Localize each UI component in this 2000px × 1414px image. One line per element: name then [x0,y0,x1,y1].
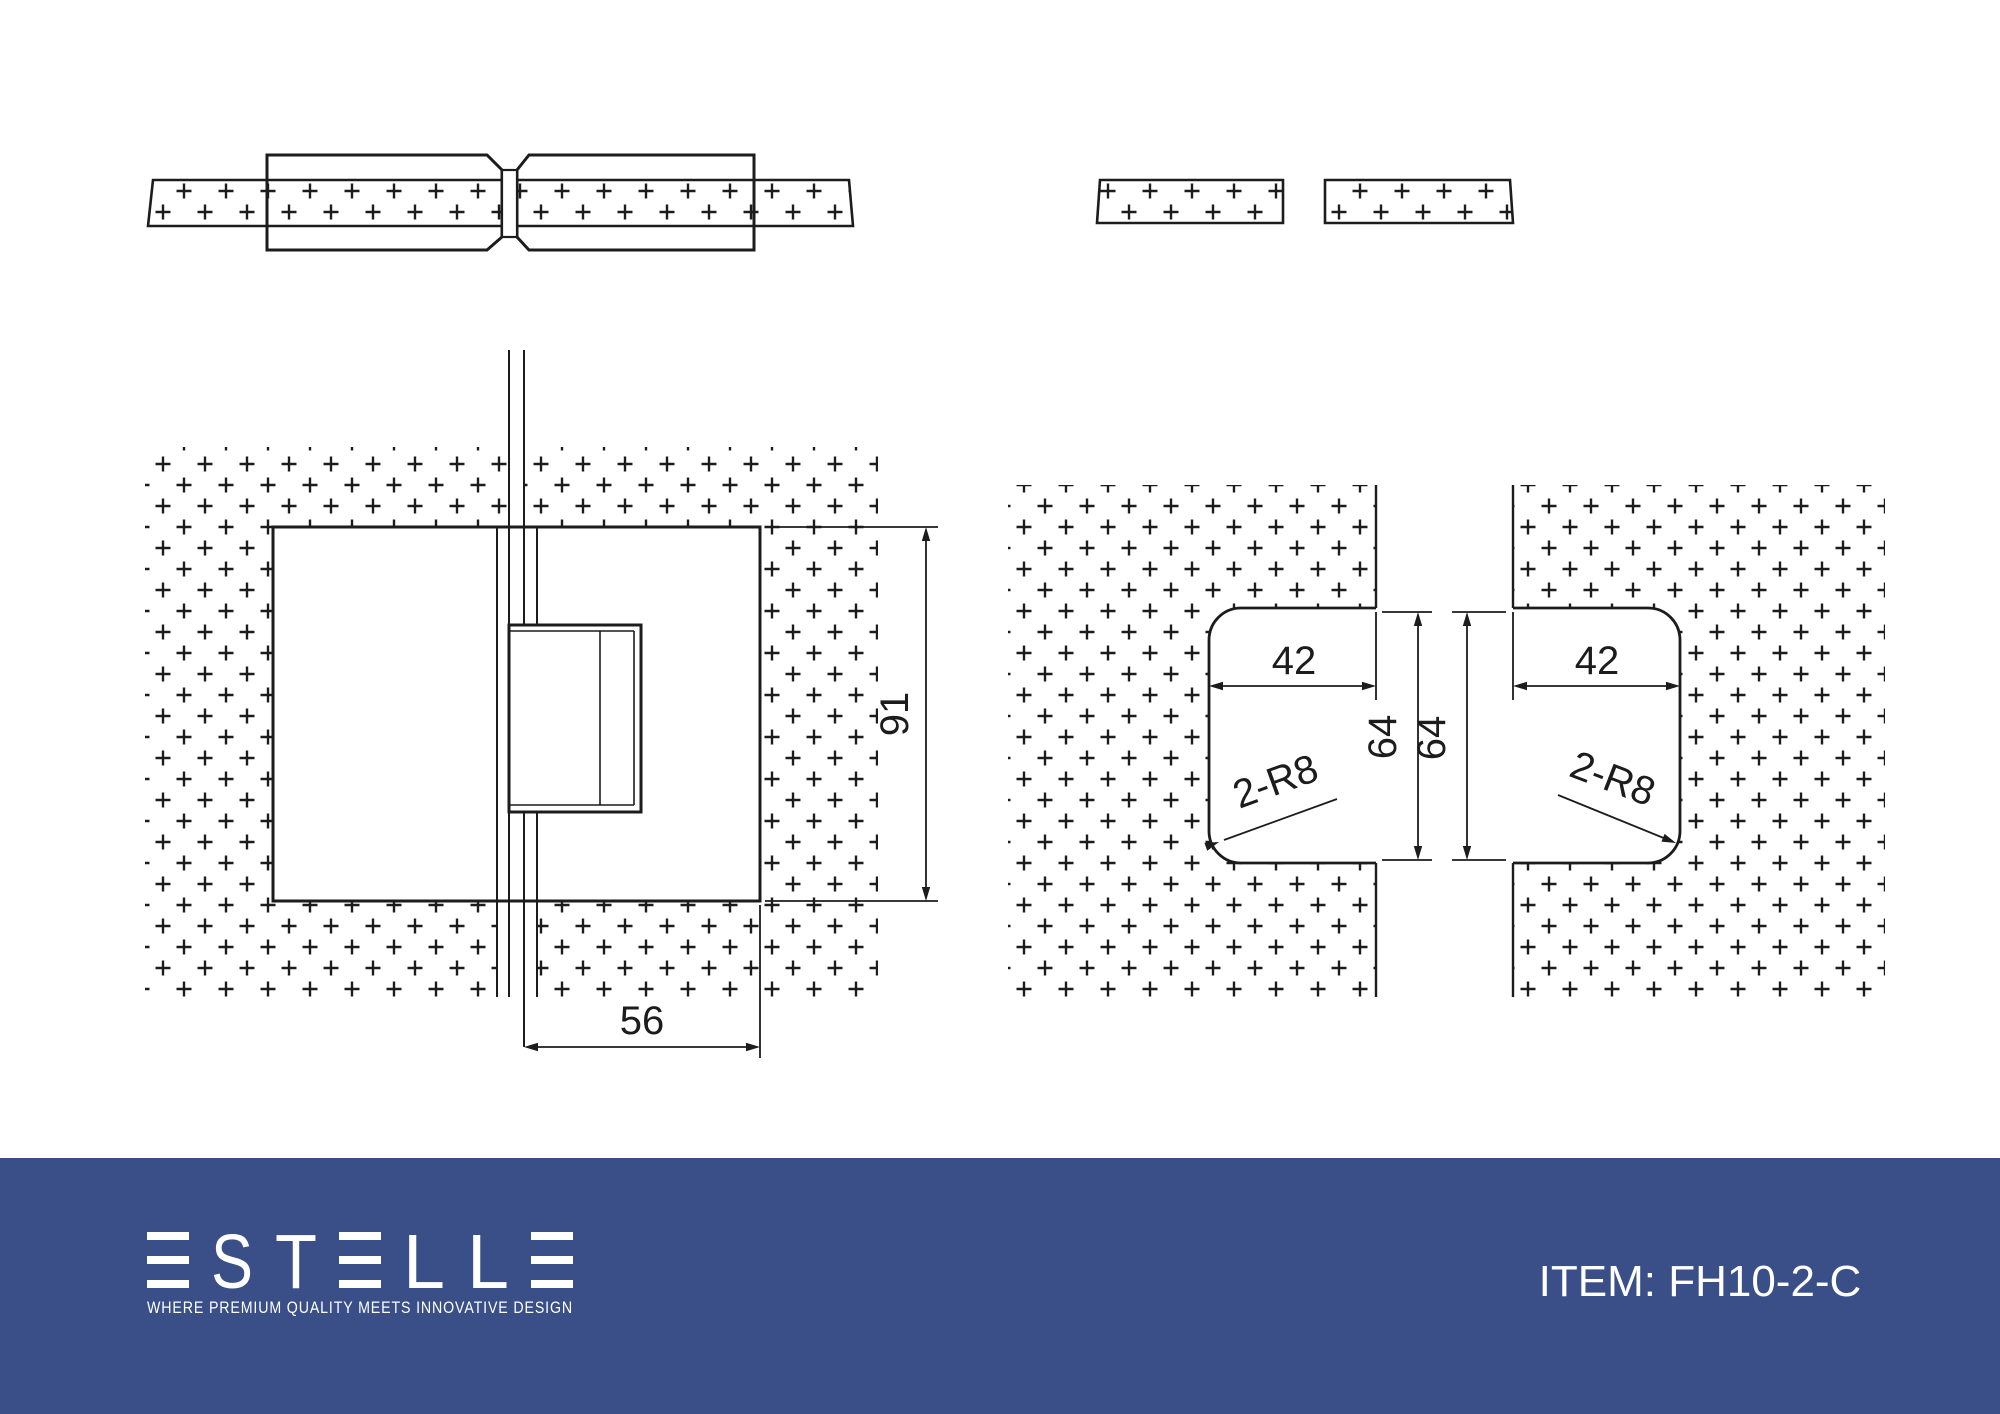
dim-42-left-label: 42 [1272,639,1317,683]
glass-edge-strips [1097,180,1513,223]
logo-letter: T [275,1219,317,1305]
arrowhead [1414,846,1422,860]
logo-letter: S [211,1219,253,1305]
spec-sheet: 91 56 42 [0,0,2000,1414]
brand-tagline: WHERE PREMIUM QUALITY MEETS INNOVATIVE D… [147,1299,573,1317]
dim-64-right-label: 64 [1410,716,1454,761]
item-number: ITEM: FH10-2-C [1539,1257,1862,1306]
hinge-top-view [148,155,853,250]
dim-64-right [1452,612,1506,860]
arrowhead [1463,612,1471,626]
arrowhead [746,1043,760,1051]
glass-strip-right [1325,180,1513,223]
arrowhead [1463,846,1471,860]
dim-64-left-label: 64 [1361,715,1405,760]
glass-panel-right-top-view [517,180,853,226]
dim-42-right-label: 42 [1575,639,1620,683]
glass-panel-left-top-view [148,180,502,226]
logo-letter: L [467,1219,509,1305]
arrowhead [922,887,930,901]
footer: S T L L WHERE PREMIUM QUALITY MEETS INNO… [0,1158,2000,1414]
arrowhead [524,1043,538,1051]
glass-gap-lower [497,901,537,997]
dim-width-label: 56 [620,999,665,1043]
glass-strip-left [1097,180,1283,223]
hinge-front-view: 91 56 [145,350,938,1058]
logo-letter: L [403,1219,445,1305]
hinge-pivot [502,170,517,237]
glass-cutout-views: 42 42 64 64 2-R8 [1008,485,1885,997]
hinge-knuckle [509,625,641,812]
dim-height-label: 91 [873,692,917,737]
glass-gap-upper [509,447,524,527]
arrowhead [1414,612,1422,626]
arrowhead [922,527,930,541]
spec-sheet-drawing: 91 56 42 [0,0,2000,1414]
